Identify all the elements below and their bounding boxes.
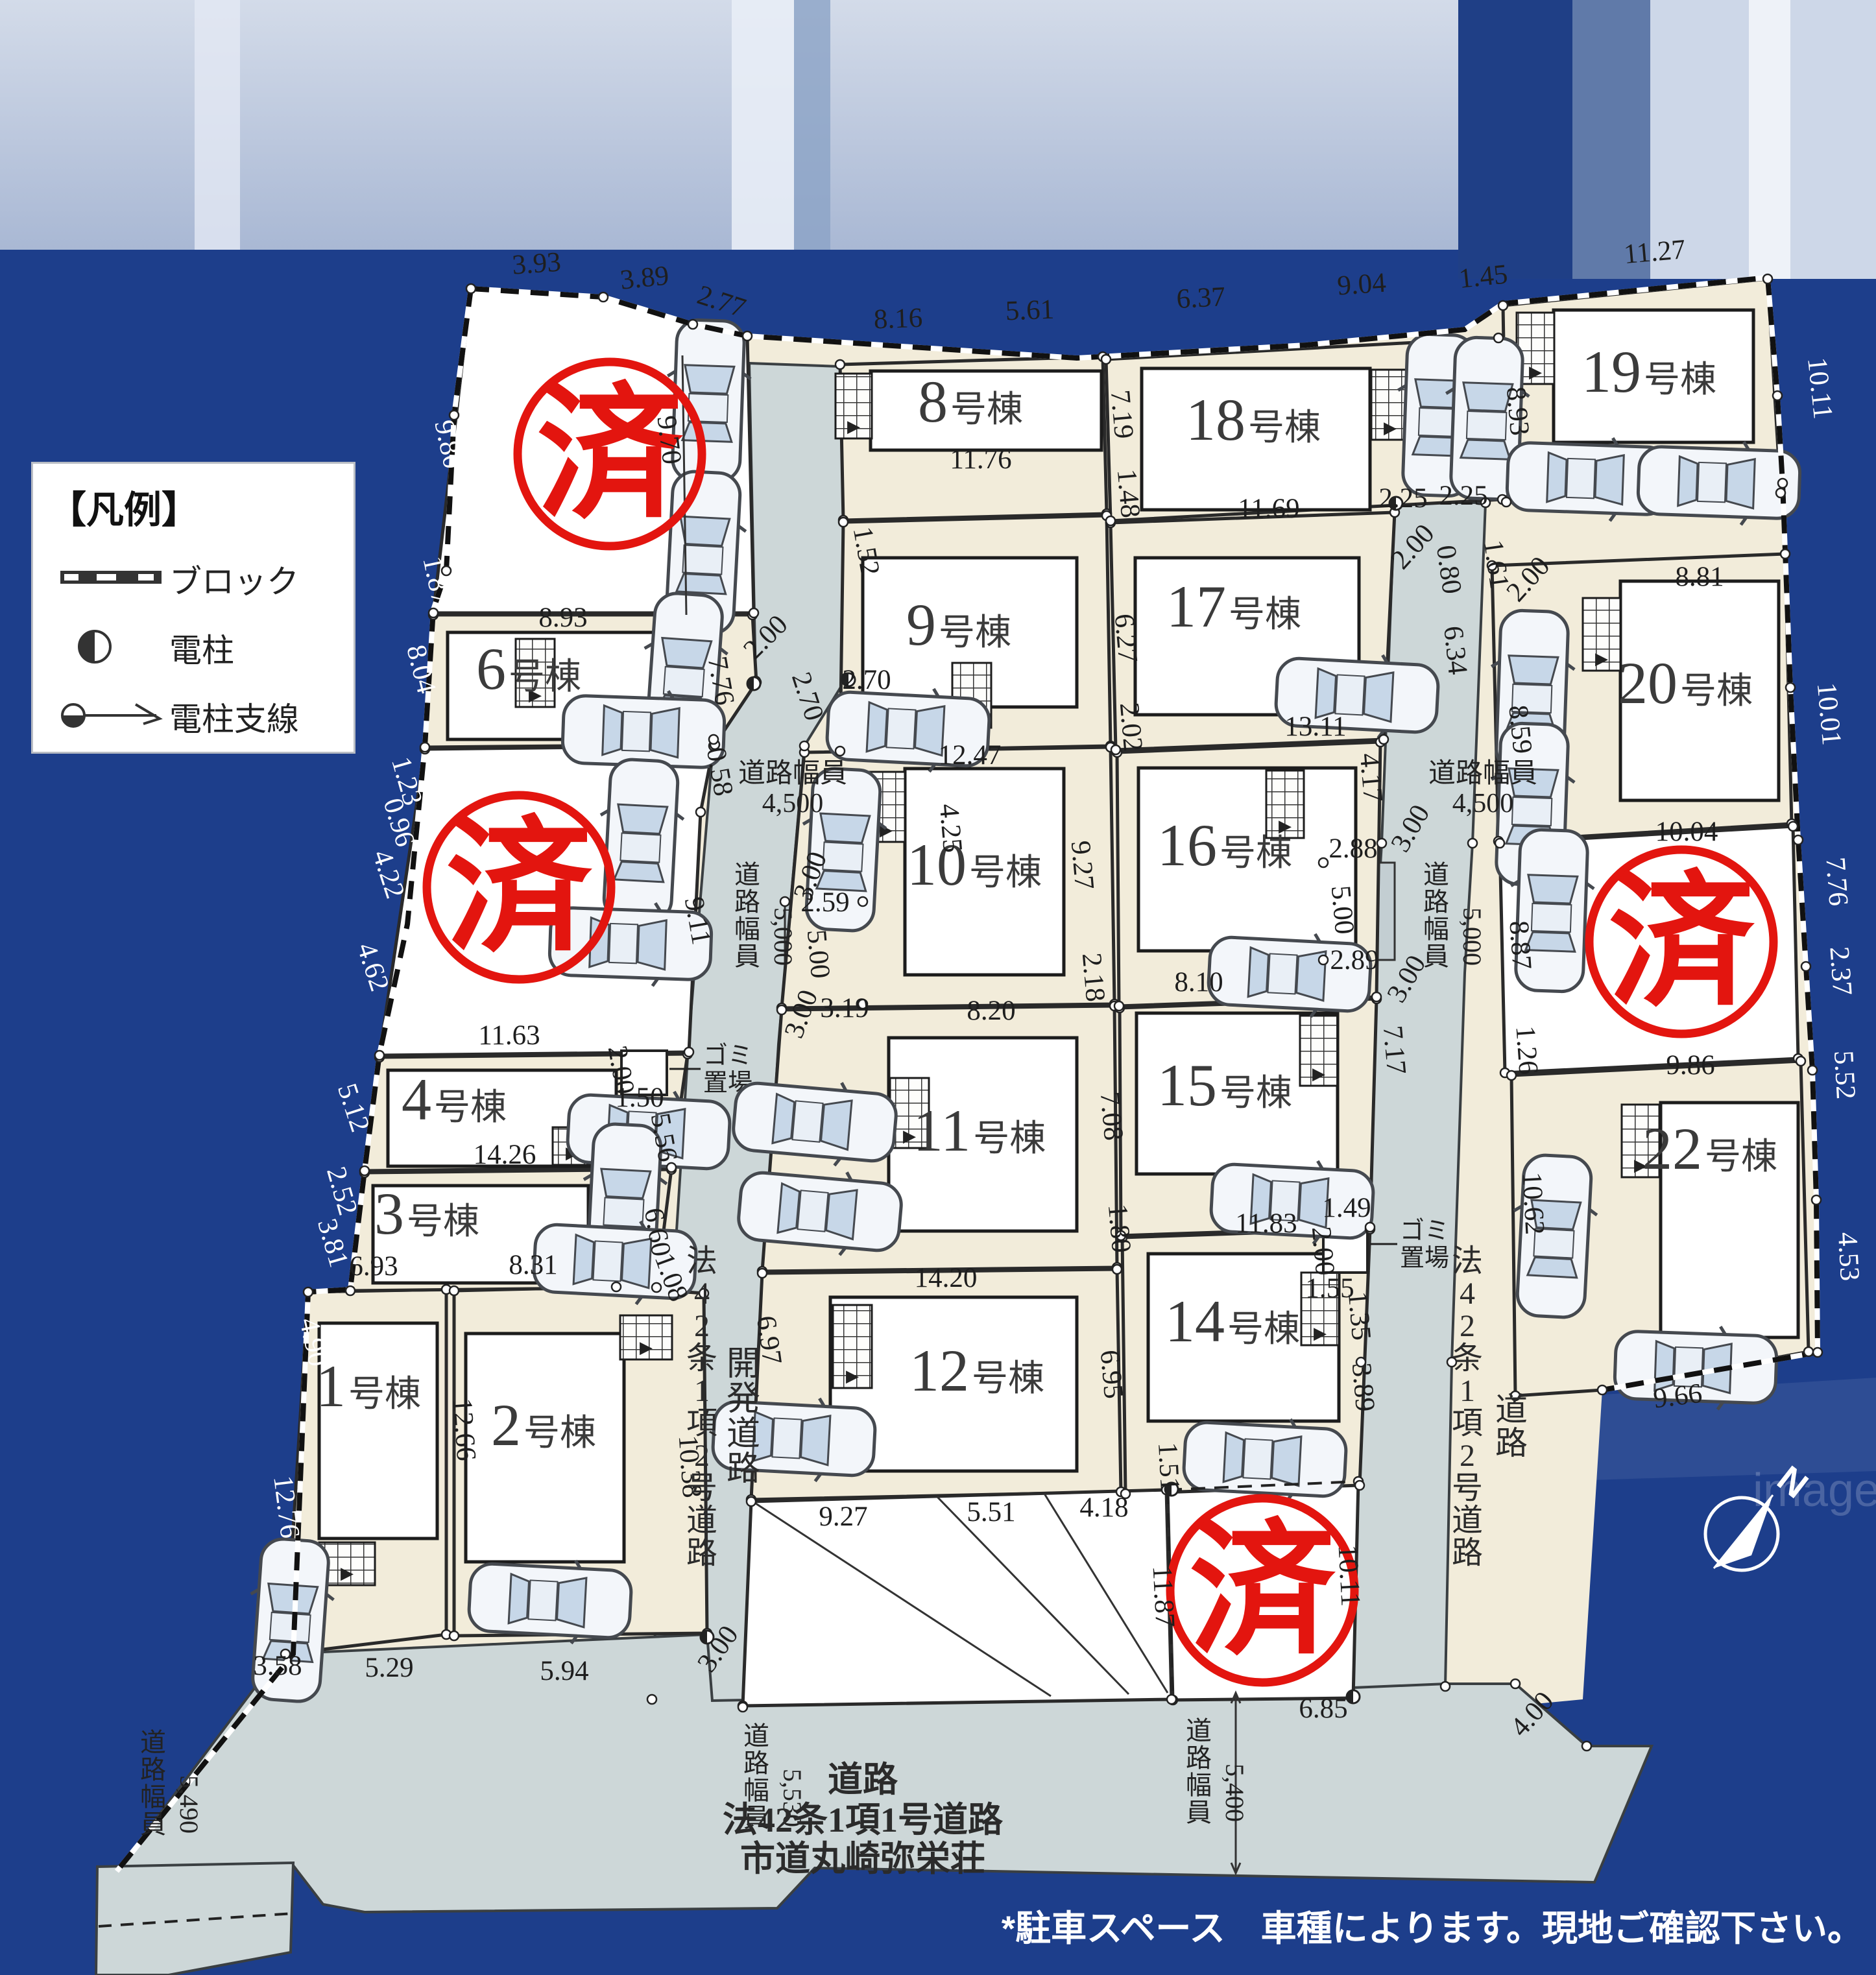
boundary-point [1808,1066,1817,1075]
measurement-label: 7.76 [1820,856,1853,907]
legend-item-label: 電柱支線 [169,693,299,740]
measurement-label: 8.81 [1675,562,1724,592]
measurement-label: 12.66 [447,1397,482,1462]
boundary-point [1372,992,1381,1001]
boundary-point [1495,839,1504,848]
boundary-point [1498,301,1508,310]
boundary-point [747,1497,756,1506]
legend-item-label: ブロック [169,556,299,603]
boundary-point [1804,1347,1813,1356]
measurement-label: 8.31 [509,1250,557,1280]
boundary-point [450,1286,459,1295]
boundary-point [1786,683,1795,692]
boundary-point [1101,355,1111,364]
trash-label: 置場 [1400,1245,1449,1272]
road-name-vertical: 道路 [1495,1391,1528,1461]
measurement-label: 3.93 [511,246,562,280]
photo-streak [732,0,794,250]
measurement-label: 2.25 [1439,481,1487,511]
measurement-label: 10.11 [1801,356,1838,421]
measurement-label: 4.53 [1832,1231,1865,1282]
boundary-point [688,320,697,329]
boundary-point [1355,1481,1364,1490]
measurement-label: 9.86 [1666,1050,1714,1081]
measurement-label: 6.27 [1109,612,1143,664]
measurement-label: 7.17 [1377,1024,1412,1075]
road-width-label: 4,500 [1452,789,1514,819]
measurement-label: 2.00 [1306,1225,1340,1276]
measurement-label: 5.61 [1005,294,1055,327]
block-wall-icon [59,568,169,591]
measurement-label: 9.04 [1336,267,1387,301]
boundary-point [709,735,718,744]
flyer-page: 相模原市中央区並木 第15 新築分譲住宅 全 22 棟 ▶▶▶▶▶▶▶▶▶▶▶▶… [0,0,1876,1975]
photo-streak [1749,0,1790,279]
measurement-label: 2.18 [1076,952,1111,1003]
measurement-label: 2.89 [1330,945,1378,976]
legend-item-block: ブロック [59,556,354,603]
measurement-label: 1.80 [1102,1203,1136,1254]
measurement-label: 4.25 [933,802,968,854]
boundary-point [1778,479,1787,488]
road-width-label: 道路幅員 [738,759,847,789]
boundary-point [1776,488,1785,497]
measurement-label: 14.20 [915,1263,978,1293]
measurement-label: 8.10 [1174,967,1223,998]
boundary-point [749,608,758,617]
road-width-label: 道路幅員 [734,860,760,971]
measurement-label: 11.83 [1235,1208,1297,1239]
boundary-point [304,1287,313,1297]
entrance-arrow-icon: ▶ [1529,363,1542,381]
measurement-label: 3.58 [253,1651,302,1681]
boundary-point [839,518,848,527]
road-width-label: 道路幅員 [1186,1716,1212,1827]
measurement-label: 5.51 [967,1497,1015,1527]
measurement-label: 6.93 [349,1251,398,1282]
legend-item-pole: 電柱 [59,625,354,671]
sold-stamp: 済 [427,795,611,979]
photo-band-dark [1458,0,1572,279]
photo-streak [794,0,830,250]
road-width-value: 5,000 [769,907,798,966]
boundary-point [360,1166,369,1175]
boundary-point [1379,735,1388,744]
boundary-point [1114,1001,1124,1011]
photo-band-mid [1572,0,1650,279]
boundary-point [1812,1195,1821,1204]
measurement-label: 8.93 [538,603,587,633]
measurement-label: 10.62 [1516,1171,1550,1236]
measurement-label: 9.70 [651,414,687,466]
measurement-label: 7.08 [1094,1090,1129,1142]
measurement-label: 11.63 [478,1020,540,1051]
boundary-point [684,1047,693,1057]
measurement-label: 5.00 [1325,884,1360,935]
measurement-label: 4.17 [1354,752,1388,803]
measurement-label: 9.27 [819,1502,867,1532]
utility-pole-icon [59,628,169,668]
measurement-label: 8.16 [873,303,923,335]
boundary-point [612,1282,621,1291]
measurement-label: 1.49 [1322,1193,1371,1223]
boundary-point [858,897,867,906]
road-width-label: 道路幅員 [1428,759,1537,789]
boundary-point [1511,1679,1520,1688]
measurement-label: 10.04 [1655,817,1718,847]
road-name-vertical: 開発道路 [727,1346,760,1488]
measurement-label: 5.52 [1828,1049,1861,1100]
measurement-label: 5.00 [801,928,836,979]
measurement-label: 13.11 [1284,712,1346,742]
measurement-label: 10.11 [1332,1544,1366,1607]
measurement-label: 1.51 [1152,1441,1185,1492]
measurement-label: 3.89 [1346,1361,1380,1413]
legend-item-label: 電柱 [169,625,234,671]
entrance-arrow-icon: ▶ [341,1564,354,1583]
measurement-label: 11.76 [950,444,1011,475]
site-plan: ▶▶▶▶▶▶▶▶▶▶▶▶▶▶▶▶▶▶ゴミ置場ゴミ置場1号棟2号棟3号棟4号棟6号… [0,0,1876,1975]
measurement-label: 2.70 [842,665,891,695]
road-name-label: 市道丸崎弥栄荘 [740,1839,985,1878]
measurement-label: 4.18 [1079,1492,1128,1523]
entrance-arrow-icon: ▶ [847,417,860,436]
boundary-point [1441,1682,1450,1691]
measurement-label: 5.94 [540,1656,588,1686]
boundary-point [696,808,705,817]
boundary-point [1781,549,1790,558]
boundary-point [375,1051,384,1060]
car-icon [1637,438,1801,527]
boundary-point [1773,391,1782,400]
parking-disclaimer: *駐車スペース 車種によります。現地ご確認下さい。 [960,1899,1863,1951]
measurement-label: 2.88 [1329,833,1377,864]
measurement-label: 1.26 [1509,1025,1543,1075]
measurement-label: 6.95 [1094,1348,1129,1400]
boundary-point [743,331,752,341]
sold-stamp-text: 済 [1609,862,1755,1024]
road-name-label: 法42条1項1号道路 [723,1801,1004,1839]
measurement-label: 14.26 [474,1140,536,1170]
measurement-label: 2.25 [1378,483,1427,514]
measurement-label: 5.29 [365,1653,413,1683]
boundary-point [800,741,809,750]
boundary-point [599,293,608,302]
measurement-label: 6.37 [1175,281,1226,315]
measurement-label: 11.69 [1238,494,1299,524]
trash-label: ゴミ [1400,1217,1449,1245]
sold-stamp: 済 [1589,850,1774,1034]
measurement-label: 2.02 [1114,701,1148,752]
sold-stamp-text: 済 [1190,1511,1336,1673]
legend-box: 【凡例】 ブロック 電柱 電柱支線 [31,462,355,754]
measurement-label: 6.34 [1437,625,1473,676]
entrance-arrow-icon: ▶ [846,1367,859,1385]
boundary-point [836,360,845,369]
measurement-label: 11.87 [1147,1565,1181,1628]
boundary-point [1763,274,1772,283]
measurement-label: 9.27 [1065,839,1100,891]
measurement-label: 8.59 [1502,704,1538,756]
boundary-point [1319,858,1328,867]
boundary-point [1365,1223,1375,1232]
measurement-label: 7.19 [1105,389,1139,440]
road-width-value: 5,490 [174,1775,204,1834]
boundary-point [1319,955,1328,964]
measurement-label: 2.37 [1823,946,1857,996]
measurement-label: 11.27 [1622,234,1687,270]
measurement-label: 3.19 [820,993,869,1023]
boundary-point [1502,497,1511,507]
car-icon [1183,1414,1347,1505]
pole-guy-wire-icon [59,699,169,735]
measurement-label: 8.20 [967,996,1015,1026]
boundary-point [1582,1742,1591,1751]
measurement-label: 1.45 [1458,259,1509,294]
legend-item-wire: 電柱支線 [59,693,354,740]
entrance-arrow-icon: ▶ [1595,649,1608,668]
boundary-point [1801,962,1810,971]
boundary-point [1813,1348,1822,1357]
boundary-point [1377,839,1386,848]
boundary-point [1794,835,1803,844]
measurement-label: 8.87 [1503,920,1537,970]
entrance-arrow-icon: ▶ [640,1338,653,1357]
car-icon [468,1555,632,1647]
road-name-label: 道路 [828,1760,898,1799]
entrance-arrow-icon: ▶ [1279,817,1292,835]
sold-stamp-text: 済 [446,808,593,970]
measurement-label: 6.85 [1299,1694,1347,1724]
road-width-label: 道路幅員 [1423,860,1449,971]
trash-label: ゴミ [703,1042,752,1070]
boundary-point [667,1163,676,1172]
entrance-arrow-icon: ▶ [1384,418,1397,437]
road-width-value: 5,000 [1458,907,1487,966]
measurement-label: 8.93 [1500,385,1535,437]
boundary-point [420,743,429,752]
road-width-label: 4,500 [762,789,824,819]
boundary-point [1112,1265,1122,1274]
road-width-label: 道路幅員 [140,1728,166,1839]
boundary-point [450,1631,459,1640]
boundary-point [1106,516,1115,525]
boundary-point [1167,1695,1176,1704]
sold-stamp: 済 [1170,1498,1354,1682]
boundary-point [429,608,438,617]
boundary-point [780,897,789,906]
measurement-label: 10.01 [1811,682,1847,747]
boundary-point [1598,1385,1607,1394]
measurement-label: 1.50 [615,1083,664,1113]
boundary-point [1796,1057,1805,1066]
measurement-label: 9.66 [1652,1378,1703,1415]
boundary-point [836,747,845,756]
entrance-arrow-icon: ▶ [1314,1324,1327,1343]
photo-streak [195,0,240,250]
road-width-value: 5,400 [1220,1764,1249,1822]
boundary-point [1494,333,1503,342]
boundary-point [758,1269,767,1278]
legend-heading: 【凡例】 [49,479,354,534]
boundary-point [738,1703,747,1712]
measurement-label: 3.89 [619,260,671,296]
measurement-label: 12.47 [939,740,1002,771]
measurement-label: 1.48 [1111,468,1146,519]
boundary-point [647,1695,656,1704]
boundary-point [466,284,475,293]
measurement-label: 1.35 [1342,1290,1377,1341]
boundary-point [1788,822,1798,831]
entrance-arrow-icon: ▶ [1312,1064,1325,1083]
boundary-point [346,1286,355,1295]
boundary-point [1468,839,1477,848]
